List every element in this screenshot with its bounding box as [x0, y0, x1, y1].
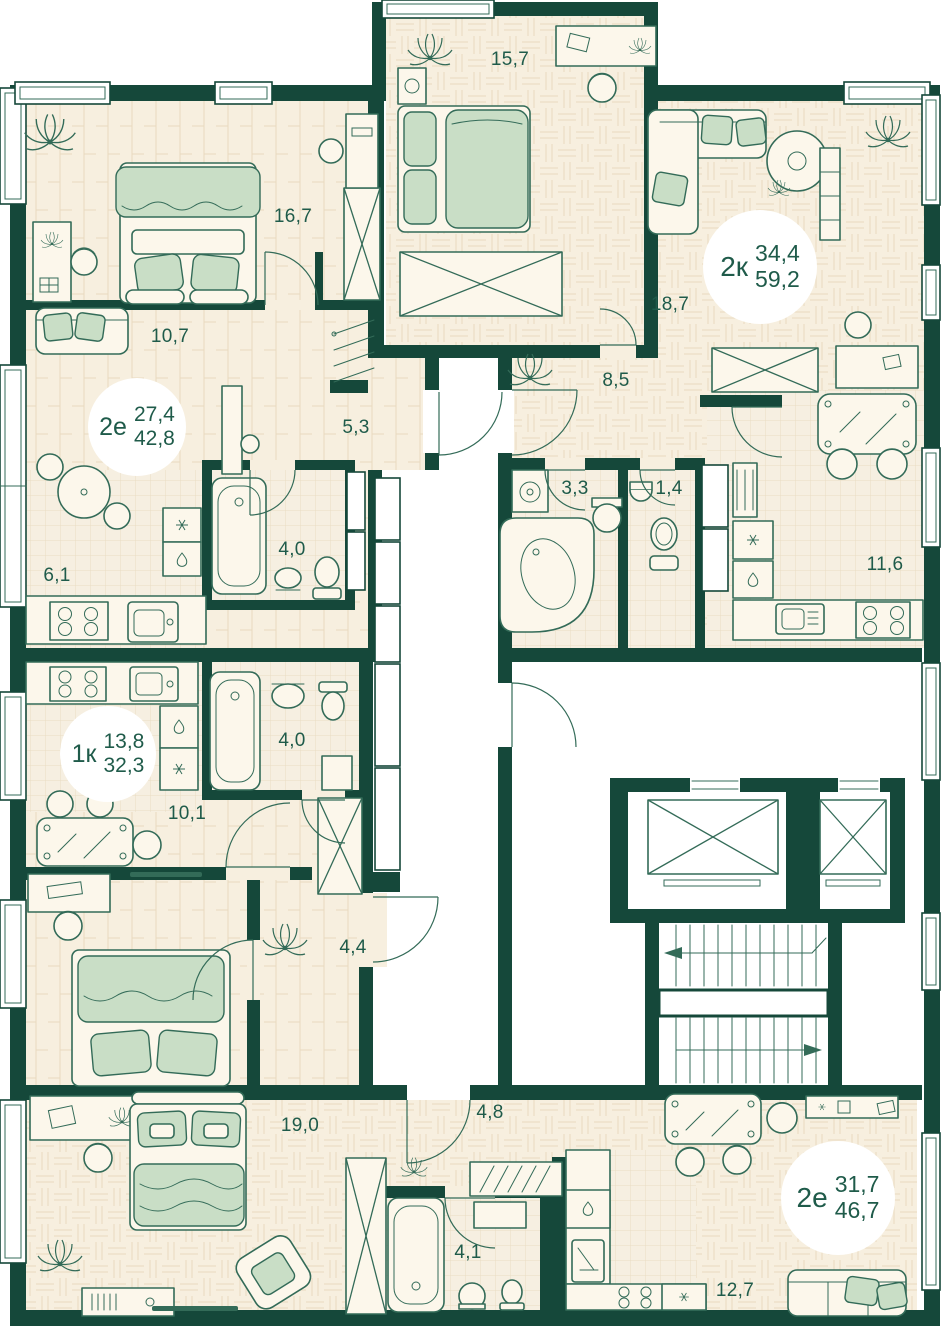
shelf: [806, 1096, 898, 1118]
chair: [723, 1145, 751, 1174]
elevator-door: [692, 781, 738, 789]
apartment-total-area: 32,3: [103, 754, 144, 778]
tv: [130, 872, 202, 877]
apartment-living-area: 13,8: [103, 730, 144, 754]
chair: [588, 73, 616, 102]
corner-sink: [630, 482, 652, 501]
sofa: [788, 1270, 908, 1316]
stove: [50, 602, 108, 640]
room-area-label: 10,7: [151, 326, 189, 348]
door-swing: [512, 683, 576, 747]
room-area-label: 4,4: [339, 937, 366, 959]
elevator: [648, 800, 778, 886]
stove: [856, 602, 910, 638]
apartment-total-area: 59,2: [755, 267, 800, 293]
window: [922, 448, 940, 547]
apartment-type: 1к: [72, 740, 97, 769]
apartment-type: 2е: [99, 413, 127, 442]
window: [922, 1133, 940, 1290]
kitchen-sink: [572, 1240, 604, 1282]
window: [922, 913, 940, 990]
window: [382, 0, 494, 18]
chair: [845, 312, 871, 338]
chair: [84, 1143, 112, 1172]
room-area-label: 4,1: [454, 1242, 481, 1264]
apartment-living-area: 31,7: [835, 1172, 880, 1198]
wardrobe: [344, 188, 380, 300]
floor-plan: [0, 0, 950, 1332]
apartment-total-area: 46,7: [835, 1198, 880, 1224]
room-area-label: 11,6: [867, 554, 904, 576]
apartment-living-area: 27,4: [134, 403, 175, 427]
water-heater: [566, 1190, 610, 1228]
staircase: [659, 925, 828, 1083]
desk: [30, 1096, 142, 1140]
kitchen-counter: [26, 662, 198, 704]
bathtub: [210, 672, 260, 790]
kitchen-counter: [733, 600, 923, 640]
kitchen-sink: [130, 667, 178, 701]
elevator: [820, 800, 886, 886]
floor-plan-canvas: 16,7 10,7 5,3 4,0 6,1 15,7 18,7 8,5 3,3 …: [0, 0, 950, 1332]
toilet: [650, 518, 678, 570]
apartment-badge: 1к 13,832,3: [60, 706, 156, 802]
kitchen-counter: [26, 596, 206, 644]
kitchen-sink: [128, 602, 178, 642]
shelving: [820, 148, 840, 240]
window: [0, 365, 26, 607]
room-area-label: 4,0: [278, 539, 305, 561]
window: [215, 82, 272, 104]
desk: [33, 222, 71, 302]
chair: [54, 911, 82, 940]
wardrobe: [400, 252, 562, 316]
room-area-label: 5,3: [342, 417, 369, 439]
water-heater: [160, 706, 198, 748]
window: [0, 1100, 26, 1263]
elevator-door: [840, 781, 878, 789]
room-area-label: 10,1: [168, 803, 206, 825]
stair-direction-arrow: [676, 1044, 822, 1056]
window: [0, 900, 26, 1008]
corner-bathtub: [500, 518, 594, 632]
chair: [104, 503, 130, 529]
room-area-label: 4,8: [476, 1102, 503, 1124]
room-area-label: 4,0: [278, 730, 305, 752]
kitchen-cabinet: [733, 463, 757, 517]
tv: [152, 1306, 238, 1311]
chair: [133, 831, 161, 859]
double-bed: [398, 106, 530, 232]
apartment-type: 2к: [720, 251, 748, 283]
apartment-badge: 2е 27,442,8: [88, 378, 186, 476]
apartment-type: 2е: [797, 1182, 828, 1214]
window: [0, 692, 26, 800]
dining-table: [665, 1094, 761, 1144]
window: [922, 265, 940, 320]
fridge: [662, 1284, 706, 1310]
chair: [676, 1147, 704, 1176]
window: [922, 663, 940, 780]
window: [922, 95, 940, 205]
chair: [319, 139, 343, 163]
desk: [836, 346, 918, 388]
wardrobe: [712, 348, 818, 392]
dining-table: [37, 818, 133, 866]
fridge: [163, 508, 201, 542]
window: [15, 82, 110, 104]
room-area-label: 18,7: [651, 294, 689, 316]
apartment-badge: 2к 34,459,2: [703, 210, 817, 324]
media-console: [82, 1288, 174, 1316]
coat-rack: [470, 1162, 562, 1196]
chair: [827, 449, 857, 479]
chair: [37, 454, 63, 480]
chair: [47, 791, 73, 817]
wardrobe: [318, 798, 362, 894]
toilet: [500, 1280, 524, 1310]
room-area-label: 19,0: [281, 1115, 319, 1137]
shoe-cabinet: [474, 1202, 526, 1228]
chair: [71, 248, 97, 275]
kitchen-sink: [776, 604, 824, 634]
desk: [556, 26, 656, 66]
bathtub: [212, 478, 266, 594]
room-area-label: 8,5: [602, 370, 629, 392]
window: [844, 82, 930, 104]
room-area-label: 1,4: [655, 478, 682, 500]
chair: [877, 449, 907, 479]
fridge: [733, 521, 773, 559]
room-area-label: 6,1: [43, 565, 70, 587]
apartment-badge: 2е 31,746,7: [781, 1141, 895, 1255]
room-area-label: 15,7: [491, 49, 529, 71]
bathroom-sink: [459, 1283, 485, 1309]
room-area-label: 12,7: [716, 1280, 754, 1302]
desk: [28, 874, 110, 912]
water-heater: [163, 542, 201, 576]
room-area-label: 3,3: [561, 478, 588, 500]
double-bed: [130, 1092, 246, 1230]
fridge: [160, 748, 198, 790]
cabinet: [322, 756, 352, 790]
stove: [50, 667, 106, 701]
apartment-living-area: 34,4: [755, 241, 800, 267]
bathroom-sink: [592, 498, 622, 532]
bathtub: [388, 1198, 444, 1312]
water-heater: [733, 561, 773, 598]
sofa: [36, 308, 128, 354]
room-area-label: 16,7: [274, 206, 312, 228]
double-bed: [72, 950, 230, 1086]
washing-machine: [512, 470, 548, 512]
elevator-core: [610, 778, 905, 1085]
bathroom-sink: [272, 684, 304, 708]
dining-table: [818, 394, 916, 454]
wardrobe: [346, 1158, 386, 1314]
toilet: [313, 557, 341, 599]
chair: [767, 1102, 797, 1133]
door-swing: [439, 392, 502, 455]
window: [0, 88, 26, 204]
desk: [346, 114, 378, 188]
nightstand: [398, 68, 426, 104]
double-bed: [116, 163, 260, 304]
apartment-total-area: 42,8: [134, 427, 175, 451]
